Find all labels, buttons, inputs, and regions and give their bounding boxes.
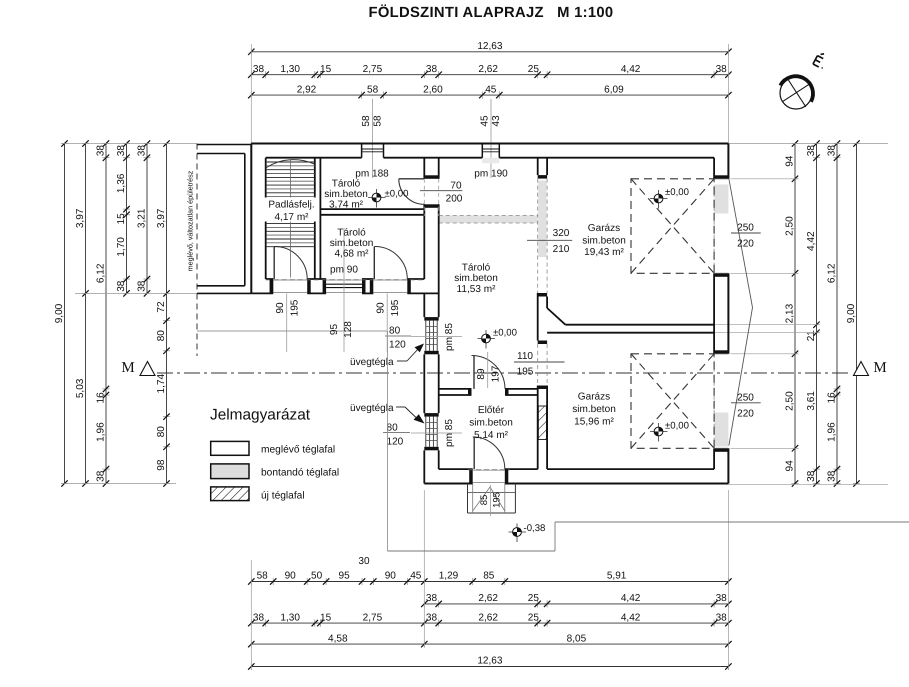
svg-text:19,43 m²: 19,43 m²: [584, 247, 624, 258]
svg-text:120: 120: [387, 437, 404, 448]
svg-text:200: 200: [446, 193, 463, 204]
svg-text:pm 90: pm 90: [330, 265, 358, 276]
svg-text:38: 38: [806, 470, 817, 482]
svg-text:3,61: 3,61: [806, 391, 817, 411]
svg-text:38: 38: [716, 593, 728, 604]
svg-text:2,62: 2,62: [478, 593, 498, 604]
svg-text:4,42: 4,42: [806, 231, 817, 251]
svg-text:1,30: 1,30: [280, 612, 300, 623]
svg-text:94: 94: [784, 460, 795, 472]
svg-text:80: 80: [387, 423, 399, 434]
svg-text:pm 85: pm 85: [444, 419, 455, 447]
svg-text:4,42: 4,42: [621, 612, 641, 623]
svg-text:Tároló: Tároló: [462, 263, 491, 274]
svg-text:4,58: 4,58: [328, 633, 348, 644]
svg-text:pm 188: pm 188: [355, 169, 389, 180]
svg-text:16: 16: [826, 392, 837, 404]
svg-text:3,74 m²: 3,74 m²: [329, 200, 364, 211]
svg-text:38: 38: [716, 64, 728, 75]
svg-text:128: 128: [343, 321, 354, 338]
svg-text:220: 220: [737, 409, 754, 420]
svg-text:43: 43: [491, 115, 502, 127]
svg-text:195: 195: [517, 367, 534, 378]
svg-text:38: 38: [116, 145, 127, 157]
svg-text:80: 80: [389, 326, 401, 337]
svg-text:Padlásfelj.: Padlásfelj.: [268, 199, 314, 210]
svg-text:220: 220: [737, 239, 754, 250]
svg-text:1,96: 1,96: [826, 422, 837, 442]
svg-text:meglévő téglafal: meglévő téglafal: [261, 445, 335, 456]
svg-text:38: 38: [426, 64, 438, 75]
svg-text:±0,00: ±0,00: [665, 421, 689, 432]
svg-text:72: 72: [156, 301, 167, 313]
svg-text:195: 195: [290, 299, 301, 316]
svg-text:90: 90: [275, 302, 286, 314]
svg-text:3,21: 3,21: [136, 208, 147, 228]
svg-text:±0,00: ±0,00: [493, 328, 517, 339]
svg-text:58: 58: [361, 115, 372, 127]
svg-text:38: 38: [95, 470, 106, 482]
svg-text:2,60: 2,60: [423, 84, 443, 95]
svg-text:sim.beton: sim.beton: [572, 404, 616, 415]
svg-text:6,09: 6,09: [604, 84, 624, 95]
svg-text:25: 25: [528, 593, 540, 604]
svg-text:197: 197: [491, 365, 502, 382]
svg-text:38: 38: [253, 612, 265, 623]
svg-text:5,14 m²: 5,14 m²: [474, 430, 509, 441]
svg-text:9,00: 9,00: [54, 303, 65, 323]
svg-text:Jelmagyarázat: Jelmagyarázat: [210, 407, 311, 424]
svg-text:2,13: 2,13: [784, 303, 795, 323]
svg-text:12,63: 12,63: [477, 656, 503, 667]
svg-text:25: 25: [528, 64, 540, 75]
svg-text:2,50: 2,50: [784, 216, 795, 236]
svg-text:sim.beton: sim.beton: [469, 418, 513, 429]
svg-text:1,30: 1,30: [280, 64, 300, 75]
svg-text:bontandó téglafal: bontandó téglafal: [261, 468, 339, 479]
svg-text:85: 85: [479, 495, 490, 506]
svg-text:195: 195: [390, 299, 401, 316]
svg-text:30: 30: [358, 556, 370, 567]
svg-text:2,62: 2,62: [478, 64, 498, 75]
svg-text:38: 38: [116, 280, 127, 292]
svg-text:38: 38: [426, 593, 438, 604]
svg-text:38: 38: [716, 612, 728, 623]
svg-text:85: 85: [483, 571, 495, 582]
svg-text:38: 38: [253, 64, 265, 75]
svg-text:58: 58: [257, 571, 269, 582]
svg-text:M: M: [121, 360, 134, 376]
svg-text:1,74: 1,74: [156, 374, 167, 394]
svg-text:15,96 m²: 15,96 m²: [574, 417, 614, 428]
svg-text:sim.beton: sim.beton: [324, 189, 368, 200]
svg-text:80: 80: [156, 330, 167, 342]
svg-text:58: 58: [373, 115, 384, 127]
svg-text:meglévő, változatlan épületrés: meglévő, változatlan épületrész: [186, 170, 195, 271]
svg-text:38: 38: [426, 612, 438, 623]
svg-text:sim.beton: sim.beton: [330, 238, 374, 249]
svg-text:3,97: 3,97: [156, 208, 167, 228]
svg-text:sim.beton: sim.beton: [454, 273, 498, 284]
svg-text:80: 80: [156, 426, 167, 438]
svg-text:98: 98: [156, 459, 167, 471]
svg-text:Tároló: Tároló: [332, 179, 361, 190]
svg-text:4,68 m²: 4,68 m²: [334, 249, 369, 260]
svg-text:15: 15: [116, 213, 127, 225]
svg-text:5,03: 5,03: [75, 378, 86, 398]
svg-text:250: 250: [737, 223, 754, 234]
svg-text:38: 38: [806, 145, 817, 157]
svg-text:1,96: 1,96: [95, 422, 106, 442]
svg-text:pm 85: pm 85: [444, 323, 455, 351]
svg-text:21: 21: [806, 330, 817, 342]
svg-text:95: 95: [329, 324, 340, 336]
svg-text:250: 250: [737, 393, 754, 404]
svg-text:15: 15: [320, 612, 332, 623]
svg-text:50: 50: [311, 571, 323, 582]
svg-text:új téglafal: új téglafal: [261, 491, 305, 502]
svg-text:1,36: 1,36: [116, 173, 127, 193]
svg-text:FÖLDSZINTI ALAPRAJZ M 1:100: FÖLDSZINTI ALAPRAJZ M 1:100: [369, 4, 614, 21]
svg-text:Garázs: Garázs: [578, 392, 610, 403]
svg-text:94: 94: [784, 155, 795, 167]
svg-text:110: 110: [517, 351, 533, 362]
svg-text:9,00: 9,00: [846, 303, 857, 323]
svg-text:38: 38: [826, 470, 837, 482]
svg-text:4,42: 4,42: [621, 64, 641, 75]
svg-text:2,75: 2,75: [363, 612, 383, 623]
svg-text:4,42: 4,42: [621, 593, 641, 604]
svg-text:3,97: 3,97: [75, 208, 86, 228]
svg-text:M: M: [873, 360, 886, 376]
svg-text:25: 25: [528, 612, 540, 623]
svg-text:sim.beton: sim.beton: [582, 236, 626, 247]
svg-text:8,05: 8,05: [567, 633, 587, 644]
svg-text:1,70: 1,70: [116, 237, 127, 257]
svg-text:120: 120: [389, 340, 406, 351]
svg-text:320: 320: [553, 228, 570, 239]
svg-text:1,29: 1,29: [439, 571, 459, 582]
svg-text:Előtér: Előtér: [478, 405, 505, 416]
svg-text:95: 95: [339, 571, 351, 582]
svg-text:15: 15: [320, 64, 332, 75]
svg-text:210: 210: [553, 244, 570, 255]
svg-text:5,91: 5,91: [607, 571, 627, 582]
svg-text:±0,00: ±0,00: [665, 187, 689, 198]
svg-text:58: 58: [367, 84, 379, 95]
svg-text:2,75: 2,75: [363, 64, 383, 75]
svg-text:4,17 m²: 4,17 m²: [274, 212, 309, 223]
svg-text:70: 70: [450, 180, 462, 191]
svg-text:45: 45: [410, 571, 422, 582]
svg-text:90: 90: [385, 571, 397, 582]
svg-text:-0,38: -0,38: [524, 523, 546, 534]
svg-text:12,63: 12,63: [477, 41, 503, 52]
svg-text:Tároló: Tároló: [337, 228, 366, 239]
svg-text:±0,00: ±0,00: [385, 189, 409, 200]
svg-text:90: 90: [376, 302, 387, 314]
svg-text:45: 45: [480, 115, 491, 127]
svg-text:90: 90: [285, 571, 297, 582]
svg-text:2,92: 2,92: [297, 84, 317, 95]
svg-text:6,12: 6,12: [826, 263, 837, 283]
svg-text:38: 38: [95, 145, 106, 157]
svg-text:195: 195: [492, 492, 503, 508]
svg-text:Garázs: Garázs: [588, 223, 620, 234]
svg-text:6,12: 6,12: [95, 263, 106, 283]
svg-text:16: 16: [95, 392, 106, 404]
svg-text:38: 38: [826, 145, 837, 157]
svg-text:38: 38: [136, 280, 147, 292]
svg-text:2,62: 2,62: [478, 612, 498, 623]
svg-text:45: 45: [485, 84, 497, 95]
svg-text:pm 190: pm 190: [474, 169, 508, 180]
svg-text:2,50: 2,50: [784, 391, 795, 411]
svg-text:11,53 m²: 11,53 m²: [457, 284, 497, 295]
svg-text:89: 89: [476, 368, 487, 380]
svg-text:38: 38: [136, 145, 147, 157]
